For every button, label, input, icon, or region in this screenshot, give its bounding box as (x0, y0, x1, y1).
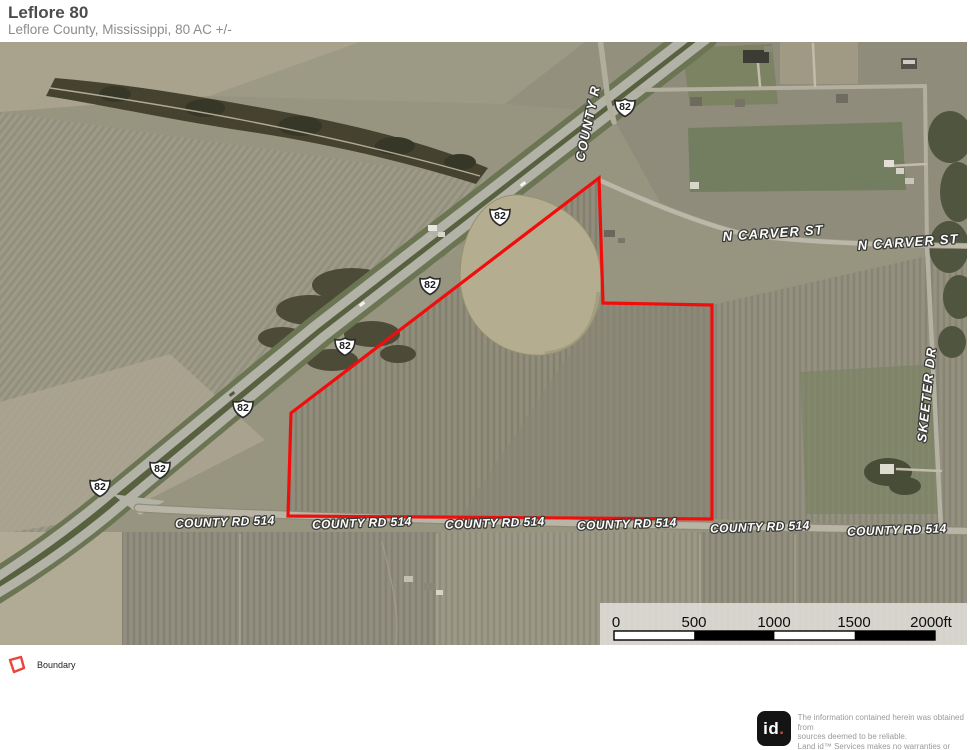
scale-label-0: 0 (612, 614, 620, 631)
map-header: Leflore 80 Leflore County, Mississippi, … (0, 0, 970, 42)
scale-bar-segment (855, 631, 935, 640)
logo-text: id (763, 719, 779, 739)
aerial-map-canvas: 82 (0, 42, 967, 645)
boundary-legend-icon (6, 654, 28, 676)
disclaimer-line: sources deemed to be reliable. (798, 732, 970, 742)
scale-label-1500: 1500 (837, 614, 870, 631)
disclaimer-line: Land id™ Services makes no warranties or… (798, 742, 970, 750)
aerial-map: 82 (0, 42, 967, 645)
legend: Boundary (6, 654, 76, 676)
scale-label-1000: 1000 (757, 614, 790, 631)
disclaimer-text: The information contained herein was obt… (798, 711, 970, 750)
scale-bar: 0 500 1000 1500 2000ft (600, 603, 967, 645)
skeeter-dr-north-road (925, 86, 927, 245)
map-report-page: Leflore 80 Leflore County, Mississippi, … (0, 0, 970, 750)
footer: id. The information contained herein was… (757, 711, 970, 750)
disclaimer-line: The information contained herein was obt… (798, 713, 970, 732)
map-title: Leflore 80 (8, 3, 88, 23)
scale-bar-segment (694, 631, 774, 640)
scale-label-500: 500 (681, 614, 706, 631)
scale-label-2000ft: 2000ft (910, 614, 953, 631)
fields-layer (0, 42, 967, 645)
land-id-logo: id. (757, 711, 791, 746)
boundary-legend-label: Boundary (37, 660, 76, 670)
logo-dot: . (779, 719, 784, 739)
map-subtitle: Leflore County, Mississippi, 80 AC +/- (8, 22, 232, 37)
